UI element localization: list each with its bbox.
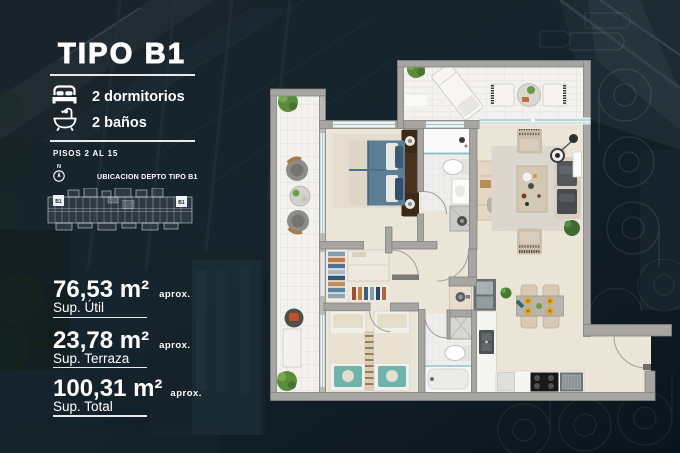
svg-text:B1: B1 xyxy=(178,200,185,206)
svg-text:B1: B1 xyxy=(55,199,62,205)
svg-text:N: N xyxy=(57,164,61,170)
